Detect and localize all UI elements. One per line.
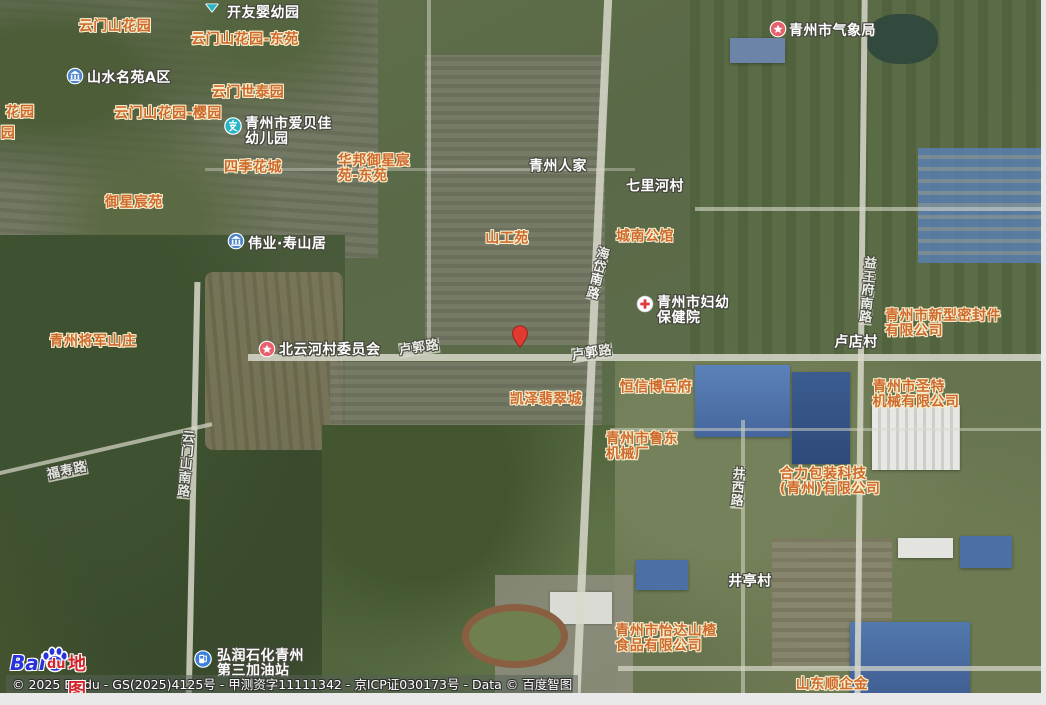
label-line: 青州市怡达山楂 [615,624,717,639]
label-line: 合力包装科技 [780,467,881,482]
label-line: 机械有限公司 [873,395,960,410]
poi-label-chengnan-gongguan[interactable]: 城南公馆 [616,230,674,245]
label-line: 云门世泰园 [212,86,285,101]
road-bottom-right-horizontal [618,666,1041,671]
poi-label-heli-baozhuang-gongsi[interactable]: 合力包装科技(青州)有限公司 [780,467,881,497]
label-line: 青州市鲁东 [606,432,679,447]
poi-label-qingzhou-jiangjun-shanzhuang[interactable]: 青州将军山庄 [50,335,137,350]
poi-label-shengte-jixie-gongsi[interactable]: 青州市圣特机械有限公司 [873,380,960,410]
road-topright-horizontal [695,207,1041,211]
label-line: 伟业·寿山居 [248,237,326,252]
label-line: 恒信博岳府 [620,381,693,396]
label-line: 开友婴幼园 [227,6,300,21]
label-line: 花园 [6,106,35,121]
callout-tip-icon[interactable] [206,0,219,17]
poi-label-yuxing-chenyuan[interactable]: 御星宸苑 [105,196,163,211]
star-icon[interactable] [770,21,787,42]
factory-roof-white-ribbed [872,405,960,470]
label-line: 山工苑 [485,232,529,247]
poi-label-partial-yuan[interactable]: 园 [1,127,16,142]
estate-icon[interactable] [67,68,84,89]
label-line: 云门山花园-樱园 [114,107,222,122]
factory-sheds-blue [918,148,1041,263]
poi-label-kaize-feicuicheng[interactable]: 凯泽翡翠城 [510,393,583,408]
poi-label-huabang-yuxingchenyuan-dongyuan[interactable]: 华邦御星宸苑-东苑 [338,154,411,184]
label-line: 幼儿园 [245,132,332,147]
poi-label-aibeijia-youeryuan[interactable]: 青州市爱贝佳幼儿园 [245,117,332,147]
stadium-track [462,604,568,668]
baidu-maps-logo[interactable]: Bai du 地图 [10,646,102,676]
label-line: 四季花城 [224,161,282,176]
poi-label-ludian-cun[interactable]: 卢店村 [834,336,878,351]
terrain-pond [866,14,938,64]
kindergarten-icon[interactable] [224,117,242,139]
label-line: 七里河村 [626,180,684,195]
poi-label-kaiyou-yingyouyuan[interactable]: 开友婴幼园 [227,6,300,21]
poi-label-jingting-cun[interactable]: 井亭村 [728,575,772,590]
label-line: (青州)有限公司 [780,482,881,497]
gas-icon[interactable] [194,650,212,672]
location-pin-marker[interactable] [512,325,529,352]
label-line: 山水名苑A区 [87,71,171,86]
label-line: 青州市新型密封件 [885,309,1001,324]
map-canvas[interactable]: 云门山花园云门山花园-东苑云门世泰园云门山花园-樱园花园园四季花城华邦御星宸苑-… [0,0,1041,693]
factory-roof-blue [730,38,785,63]
label-line: 山东顺企金 [796,678,869,693]
label-line: 青州市妇幼 [657,296,730,311]
poi-label-partial-huayuan[interactable]: 花园 [6,106,35,121]
label-line: 保健院 [657,311,730,326]
label-line: 苑-东苑 [338,169,411,184]
factory-roof-blue [792,372,850,464]
poi-label-yunmenshan-huayuan-yingyuan[interactable]: 云门山花园-樱园 [114,107,222,122]
poi-label-siji-huacheng[interactable]: 四季花城 [224,161,282,176]
factory-roof-blue [636,560,688,590]
poi-label-shangong-yuan[interactable]: 山工苑 [485,232,529,247]
terrain-residential-center [425,55,605,345]
label-line: 青州市圣特 [873,380,960,395]
poi-label-shanshui-mingyuan-aqu[interactable]: 山水名苑A区 [87,71,171,86]
poi-label-weiye-shoushanju[interactable]: 伟业·寿山居 [248,237,326,252]
road-minor-vertical [427,0,431,345]
label-line: 青州市爱贝佳 [245,117,332,132]
poi-label-qingzhou-renjia[interactable]: 青州人家 [529,160,587,175]
poi-label-yunmenshan-huayuan-dongyuan[interactable]: 云门山花园-东苑 [191,33,299,48]
poi-label-xinxing-mifengjian-gongsi[interactable]: 青州市新型密封件有限公司 [885,309,1001,339]
poi-label-fuyou-baojianyuan[interactable]: 青州市妇幼保健院 [657,296,730,326]
road-jingxi [741,420,745,693]
label-line: 有限公司 [885,324,1001,339]
poi-label-qingzhou-qixiangju[interactable]: 青州市气象局 [789,24,876,39]
label-line: 云门山花园-东苑 [191,33,299,48]
label-line: 华邦御星宸 [338,154,411,169]
poi-label-qingzhou-ludong-jixiechang[interactable]: 青州市鲁东机械厂 [606,432,679,462]
star-icon[interactable] [259,341,276,362]
label-line: 城南公馆 [616,230,674,245]
logo-text-du: du [47,657,66,672]
label-line: 卢店村 [834,336,878,351]
label-line: 青州人家 [529,160,587,175]
label-line: 食品有限公司 [615,639,717,654]
poi-label-yunmenshan-huayuan[interactable]: 云门山花园 [79,20,152,35]
logo-text-ditu: 地图 [68,650,102,693]
poi-label-shandong-shunqijin[interactable]: 山东顺企金 [796,678,869,693]
label-line: 机械厂 [606,447,679,462]
poi-label-qilihe-cun[interactable]: 七里河村 [626,180,684,195]
factory-roof-blue [960,536,1012,568]
label-line: 路 [859,311,873,326]
poi-label-beiyunhecun-weiyuanhui[interactable]: 北云河村委员会 [279,343,381,358]
poi-label-hengxin-boyuefu[interactable]: 恒信博岳府 [620,381,693,396]
label-line: 园 [1,127,16,142]
factory-roof-white [898,538,953,558]
label-line: 云门山花园 [79,20,152,35]
hospital-icon[interactable] [637,296,654,317]
poi-label-yunmen-shitaiyuan[interactable]: 云门世泰园 [212,86,285,101]
label-line: 弘润石化青州 [217,649,304,664]
label-line: 北云河村委员会 [279,343,381,358]
label-line: 井亭村 [728,575,772,590]
label-line: 路 [177,485,191,500]
label-line: 御星宸苑 [105,196,163,211]
label-line: 青州将军山庄 [50,335,137,350]
poi-label-yida-shanzha-gongsi[interactable]: 青州市怡达山楂食品有限公司 [615,624,717,654]
label-line: 路 [730,494,744,508]
estate-icon[interactable] [228,233,245,254]
label-line: 凯泽翡翠城 [510,393,583,408]
label-line: 青州市气象局 [789,24,876,39]
